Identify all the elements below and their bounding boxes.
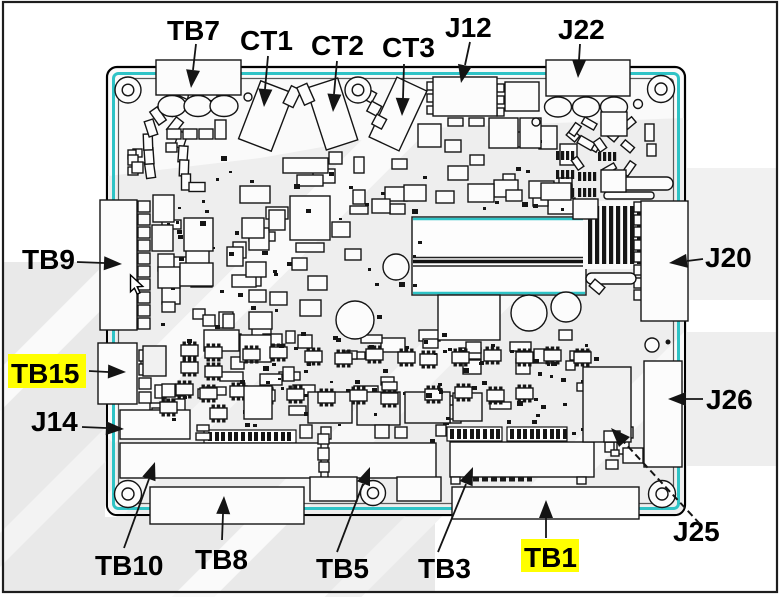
svg-text:TB5: TB5 [316, 553, 369, 584]
svg-text:TB15: TB15 [11, 358, 79, 389]
svg-text:CT1: CT1 [240, 25, 293, 56]
svg-text:J22: J22 [558, 14, 605, 45]
svg-text:TB9: TB9 [22, 244, 75, 275]
svg-text:J20: J20 [705, 242, 752, 273]
svg-text:J26: J26 [706, 384, 753, 415]
svg-text:TB3: TB3 [418, 553, 471, 584]
svg-text:CT3: CT3 [382, 32, 435, 63]
svg-text:CT2: CT2 [311, 30, 364, 61]
svg-text:TB10: TB10 [95, 550, 163, 581]
svg-text:TB7: TB7 [167, 15, 220, 46]
svg-text:J14: J14 [31, 406, 78, 437]
svg-text:TB8: TB8 [195, 544, 248, 575]
svg-text:TB1: TB1 [524, 542, 577, 573]
svg-text:J12: J12 [445, 12, 492, 43]
